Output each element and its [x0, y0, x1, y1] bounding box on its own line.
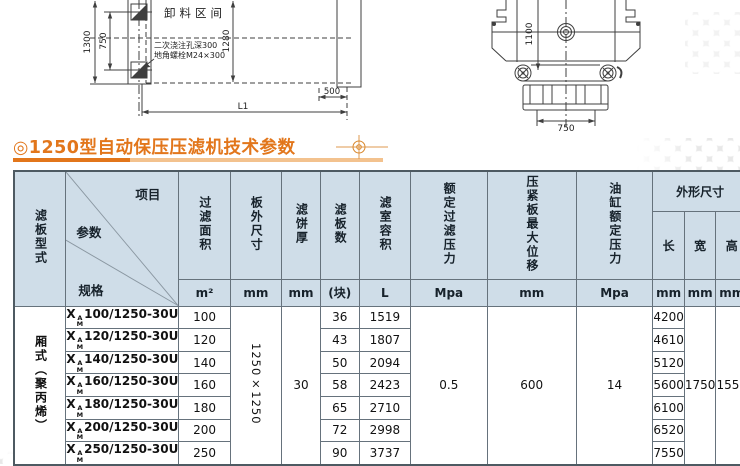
- cell-plates: 72: [320, 419, 359, 442]
- cell-model: XAM160/1250-30U: [66, 374, 179, 397]
- cell-length: 6100: [653, 397, 685, 420]
- cell-area: 250: [179, 442, 230, 465]
- header-plate-type: 滤板型式: [14, 171, 66, 306]
- cell-area: 100: [179, 306, 230, 329]
- spec-table: 滤板型式 项目 参数 规格 过滤面积 板外尺寸 滤饼厚 滤板数 滤室容积 额定过…: [13, 170, 740, 466]
- header-cake-thickness: 滤饼厚: [282, 171, 321, 279]
- header-plate-count: 滤板数: [320, 171, 359, 279]
- section-title: ◎1250型自动保压压滤机技术参数: [13, 134, 295, 159]
- unit-width: mm: [684, 279, 716, 306]
- front-view-labels: 1100 750: [525, 22, 575, 132]
- cell-volume: 2998: [359, 419, 410, 442]
- unit-chamber-volume: L: [359, 279, 410, 306]
- cell-volume: 2094: [359, 351, 410, 374]
- cell-plates: 43: [320, 329, 359, 352]
- cell-model: XAM120/1250-30U: [66, 329, 179, 352]
- cell-filter-pressure: 0.5: [411, 306, 488, 465]
- cell-cake-thickness: 30: [282, 306, 321, 465]
- cell-height: 1550: [716, 306, 740, 465]
- header-max-displacement: 压紧板最大位移: [487, 171, 576, 279]
- cell-length: 6520: [653, 419, 685, 442]
- cell-length: 5600: [653, 374, 685, 397]
- catalog-page: { "title": {"text": "◎1250型自动保压压滤机技术参数"}…: [0, 0, 740, 464]
- header-overall-dims-group: 外形尺寸: [653, 171, 740, 211]
- cell-plates: 90: [320, 442, 359, 465]
- cell-plates: 50: [320, 351, 359, 374]
- unit-max-displacement: mm: [487, 279, 576, 306]
- header-length: 长: [653, 211, 685, 279]
- unit-height: mm: [716, 279, 740, 306]
- unit-plate-count: (块): [320, 279, 359, 306]
- front-view-drawing: [492, 0, 640, 127]
- unit-cake-thickness: mm: [282, 279, 321, 306]
- header-width: 宽: [684, 211, 716, 279]
- unit-filter-pressure: Mpa: [411, 279, 488, 306]
- cell-volume: 1519: [359, 306, 410, 329]
- cell-model: XAM250/1250-30U: [66, 442, 179, 465]
- cell-plate-type: 厢式（聚丙烯）: [14, 306, 66, 465]
- registration-mark-icon: [334, 133, 390, 161]
- header-cylinder-pressure: 油缸额定压力: [576, 171, 653, 279]
- cell-model: XAM180/1250-30U: [66, 397, 179, 420]
- plan-labels: 卸料区间 二次浇注孔深300 地角螺栓M24×300 1300 750 1280…: [83, 6, 340, 112]
- dim-label-1300: 1300: [83, 30, 93, 53]
- dim-label-1280: 1280: [222, 29, 232, 52]
- dim-label-L1: L1: [238, 102, 249, 112]
- cell-plate-size: 1250×1250: [230, 306, 281, 465]
- cell-length: 7550: [653, 442, 685, 465]
- cell-volume: 1807: [359, 329, 410, 352]
- note-line1: 二次浇注孔深300: [154, 40, 217, 50]
- cell-area: 160: [179, 374, 230, 397]
- cell-area: 180: [179, 397, 230, 420]
- header-filter-pressure: 额定过滤压力: [411, 171, 488, 279]
- unit-cylinder-pressure: Mpa: [576, 279, 653, 306]
- cell-cylinder-pressure: 14: [576, 306, 653, 465]
- cell-model: XAM140/1250-30U: [66, 351, 179, 374]
- cell-volume: 2710: [359, 397, 410, 420]
- cell-length: 4200: [653, 306, 685, 329]
- unit-plate-size: mm: [230, 279, 281, 306]
- cell-length: 4610: [653, 329, 685, 352]
- dim-label-750: 750: [99, 32, 109, 49]
- dim-label-500: 500: [324, 87, 340, 97]
- cell-length: 5120: [653, 351, 685, 374]
- cell-model: XAM100/1250-30U: [66, 306, 179, 329]
- header-chamber-volume: 滤室容积: [359, 171, 410, 279]
- dim-label-1100: 1100: [525, 22, 535, 45]
- unit-filter-area: m²: [179, 279, 230, 306]
- header-height: 高: [716, 211, 740, 279]
- diagonal-label-spec: 规格: [78, 280, 103, 299]
- cell-model: XAM200/1250-30U: [66, 419, 179, 442]
- technical-drawings: 卸料区间 二次浇注孔深300 地角螺栓M24×300 1300 750 1280…: [0, 0, 740, 132]
- cell-volume: 3737: [359, 442, 410, 465]
- table-row: 厢式（聚丙烯） XAM100/1250-30U 100 1250×1250 30…: [14, 306, 740, 329]
- cell-max-displacement: 600: [487, 306, 576, 465]
- header-row-groups: 滤板型式 项目 参数 规格 过滤面积 板外尺寸 滤饼厚 滤板数 滤室容积 额定过…: [14, 171, 740, 211]
- cell-plates: 36: [320, 306, 359, 329]
- cell-plates: 58: [320, 374, 359, 397]
- header-diagonal-cell: 项目 参数 规格: [66, 171, 179, 306]
- cell-area: 120: [179, 329, 230, 352]
- cell-plates: 65: [320, 397, 359, 420]
- unit-length: mm: [653, 279, 685, 306]
- cell-width: 1750: [684, 306, 716, 465]
- discharge-area-label: 卸料区间: [164, 6, 226, 20]
- dim-label-base-750: 750: [557, 124, 574, 132]
- diagonal-label-item: 项目: [135, 184, 160, 203]
- header-plate-size: 板外尺寸: [230, 171, 281, 279]
- note-line2: 地角螺栓M24×300: [154, 50, 225, 60]
- cell-volume: 2423: [359, 374, 410, 397]
- cell-area: 200: [179, 419, 230, 442]
- title-underline: [13, 158, 383, 162]
- diagonal-label-param: 参数: [76, 222, 101, 241]
- section-title-text: ◎1250型自动保压压滤机技术参数: [13, 138, 295, 158]
- cell-area: 140: [179, 351, 230, 374]
- header-filter-area: 过滤面积: [179, 171, 230, 279]
